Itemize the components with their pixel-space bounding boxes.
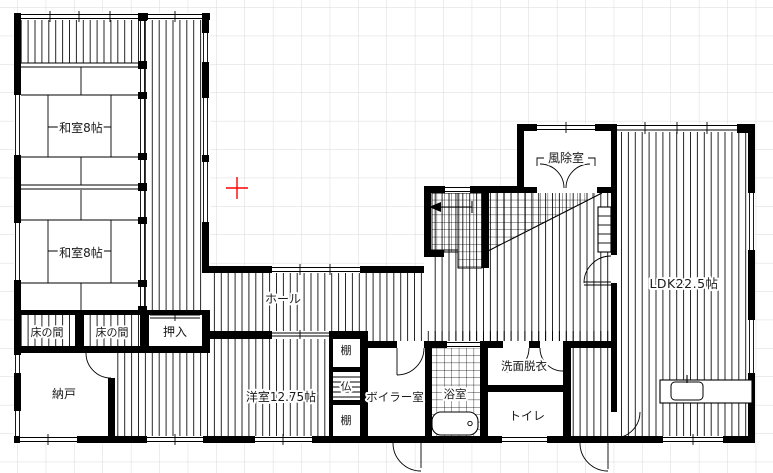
bathtub <box>432 412 478 435</box>
floor-plan-canvas[interactable]: 和室8帖 和室8帖 床の間 床の間 押入 納戸 ホール 洋室12.75帖 棚 仏… <box>0 0 773 473</box>
windows-courtyard-wall <box>202 33 209 222</box>
room-label-ldk: LDK22.5帖 <box>649 276 718 291</box>
room-label-nando: 納戸 <box>52 387 76 401</box>
room-label-senmen: 洗面脱衣 <box>501 359 547 373</box>
room-label-washitsu-1: 和室8帖 <box>59 120 103 135</box>
shoe-cabinet <box>598 207 611 252</box>
room-label-tokonoma-1: 床の間 <box>31 325 64 339</box>
floor-plan-drawing: 和室8帖 和室8帖 床の間 床の間 押入 納戸 ホール 洋室12.75帖 棚 仏… <box>0 0 773 473</box>
room-label-hall: ホール <box>265 292 301 306</box>
room-label-boiler: ボイラー室 <box>366 390 424 404</box>
room-label-youshitsu: 洋室12.75帖 <box>246 389 316 404</box>
room-label-tokonoma-2: 床の間 <box>96 325 129 339</box>
room-label-oshiire: 押入 <box>163 325 187 339</box>
room-label-washitsu-2: 和室8帖 <box>59 245 103 260</box>
room-label-bath: 浴室 <box>444 387 467 401</box>
window-genkan-top <box>445 186 470 193</box>
room-label-tana-bottom: 棚 <box>341 413 352 427</box>
room-label-fujyoshitsu: 風除室 <box>548 150 584 165</box>
room-label-butsudan: 仏 <box>341 380 352 393</box>
room-label-tana-top: 棚 <box>341 343 352 357</box>
room-label-toilet: トイレ <box>509 409 545 423</box>
window-bath-top <box>447 341 480 348</box>
